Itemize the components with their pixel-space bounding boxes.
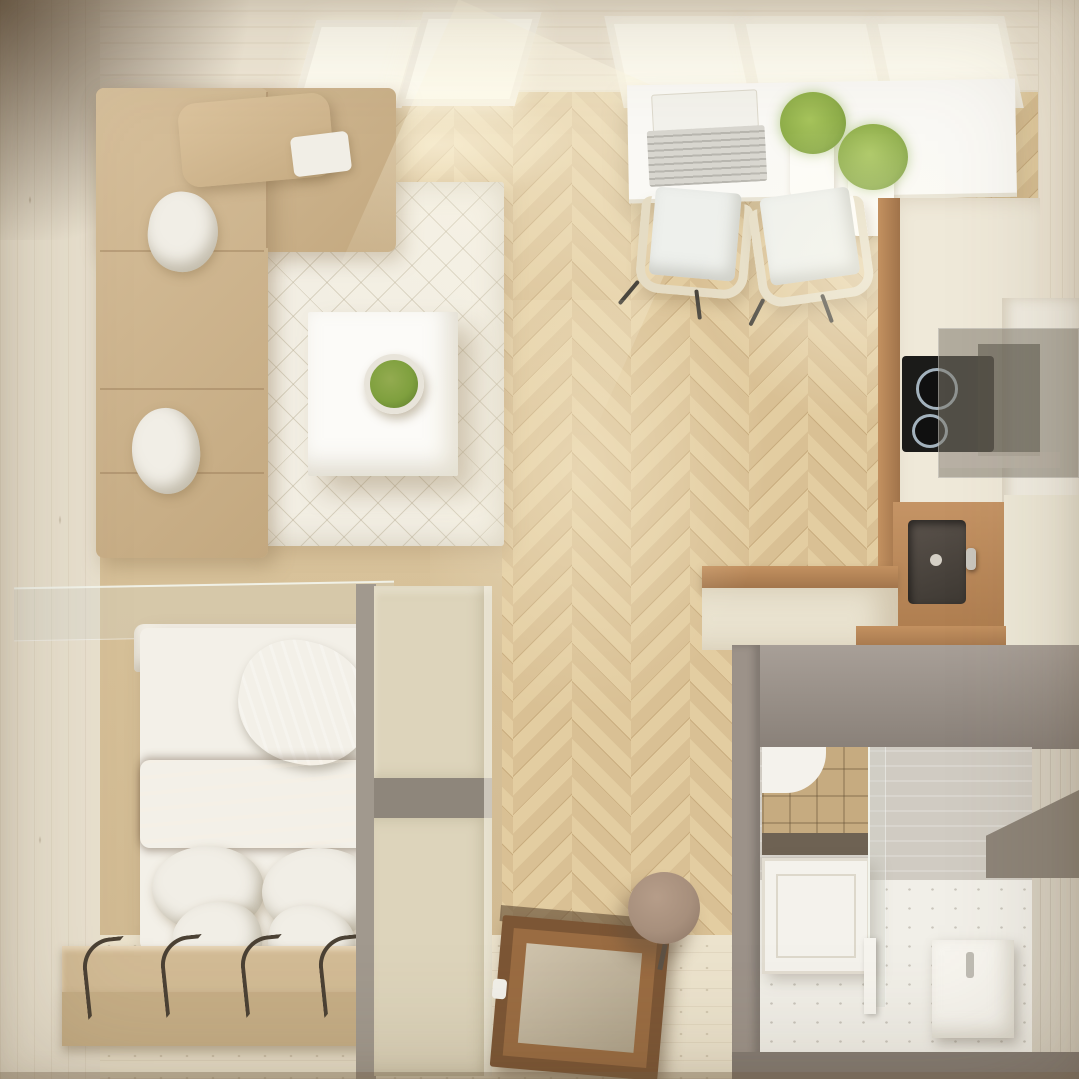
folded-blanket xyxy=(290,131,352,178)
dining-chair xyxy=(748,194,877,309)
shower-tray xyxy=(762,833,868,855)
image-bottom-edge xyxy=(0,1072,1079,1079)
sink-drain xyxy=(930,554,942,566)
kitchen-faucet xyxy=(966,548,976,570)
sofa-seam xyxy=(100,388,264,390)
range-hood-trim xyxy=(940,452,1060,468)
metal-hook xyxy=(80,936,132,1020)
wardrobe-recess xyxy=(374,778,492,818)
bathroom-top-wall xyxy=(732,645,1079,749)
range-hood-duct xyxy=(978,344,1040,456)
basin-faucet xyxy=(966,952,974,978)
glass-screen-post xyxy=(864,938,876,1014)
moss-bowl-plant xyxy=(364,354,424,414)
wardrobe-side-panel xyxy=(356,584,376,1079)
peninsula-countertop xyxy=(702,566,898,590)
bathroom-left-wall xyxy=(732,645,760,1079)
chair-seat xyxy=(649,186,742,281)
entry-door-top-view xyxy=(490,915,671,1079)
wardrobe-edge-highlight xyxy=(484,586,492,1076)
door-handle xyxy=(492,978,508,999)
chair-seat xyxy=(759,186,860,286)
apartment-floor-plan-render xyxy=(0,0,1079,1079)
bathtub-panel-inset xyxy=(776,874,856,958)
kitchen-cabinet xyxy=(1004,495,1079,663)
grass-plant xyxy=(838,124,908,190)
metal-hook xyxy=(158,934,210,1018)
laptop-keyboard xyxy=(647,125,768,187)
wardrobe-lower-block xyxy=(374,818,492,1076)
round-stool xyxy=(628,872,700,944)
floor-plank-column xyxy=(513,90,572,948)
metal-hook xyxy=(238,934,290,1018)
brown-blanket xyxy=(140,760,386,848)
wardrobe-upper-block xyxy=(374,586,492,778)
grass-plant xyxy=(780,92,846,154)
floor-plank-column xyxy=(572,90,631,948)
door-panel xyxy=(518,943,642,1053)
dining-chair xyxy=(634,195,754,300)
